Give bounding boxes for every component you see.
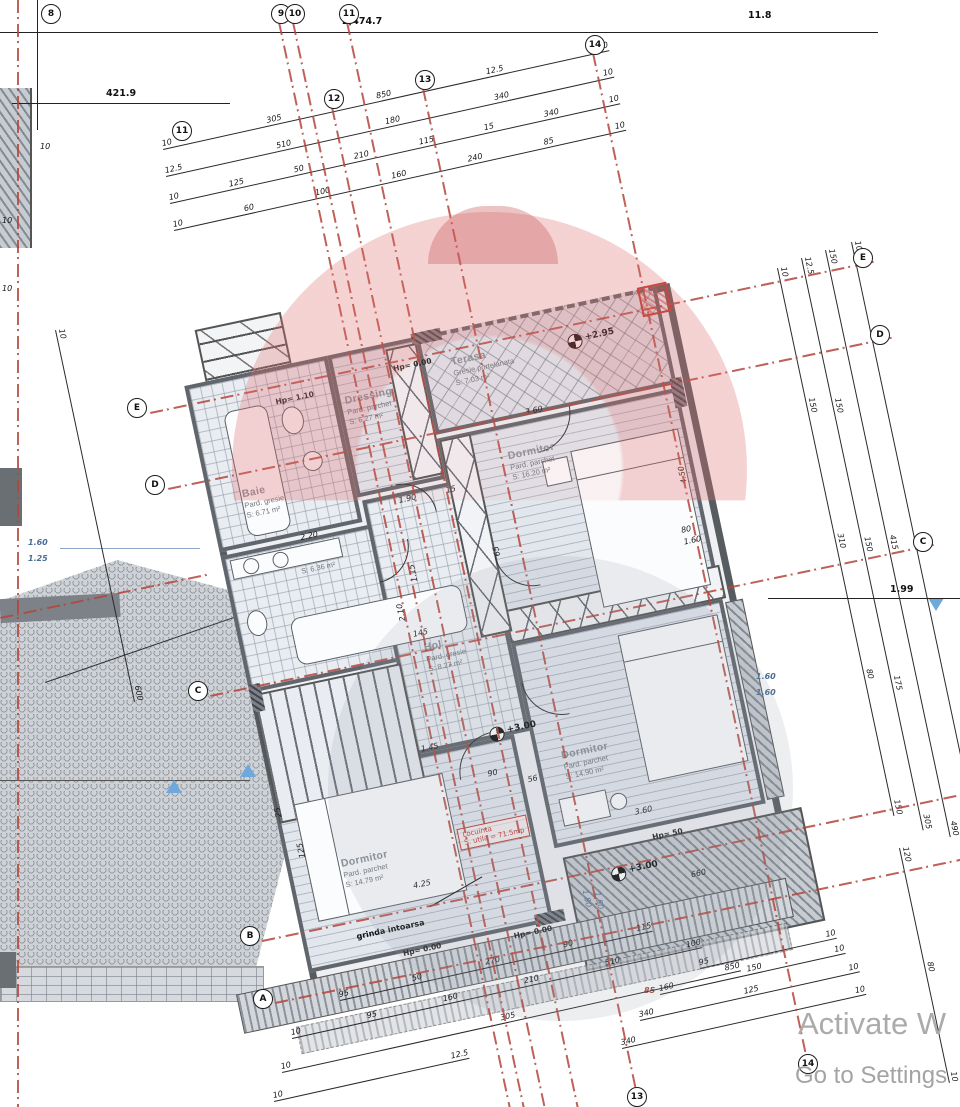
- dim-value: 510: [275, 138, 290, 141]
- grid-bubble-10: 10: [285, 4, 305, 24]
- dim-value: 10: [602, 67, 612, 69]
- dimension-1-99: 1.99: [890, 584, 913, 595]
- top-boundary-line: [0, 32, 878, 33]
- interior-dim: 25: [273, 806, 284, 818]
- interior-dim: 65: [491, 545, 502, 557]
- dim-value: 10: [788, 266, 790, 276]
- dim-value: 12.5: [164, 162, 181, 166]
- dim-value: 15: [483, 121, 493, 123]
- dim-value: 85: [543, 136, 553, 138]
- dim-value: 10: [958, 1071, 960, 1081]
- edge-tick: 10: [40, 142, 50, 151]
- secondary-dimension-line: [12, 103, 230, 104]
- dim-value: 125: [743, 984, 758, 987]
- dim-value: 10: [614, 120, 624, 122]
- dim-value: 150: [816, 397, 819, 412]
- dimension-11-8: 11.8: [748, 10, 771, 21]
- section-line-A: [768, 598, 960, 599]
- dim-value: 305: [266, 113, 281, 116]
- dim-value: 10: [168, 191, 178, 193]
- grid-bubble-D-left: D: [145, 475, 165, 495]
- windows-activation-text: Activate W: [798, 1006, 946, 1042]
- grid-bubble-11: 11: [339, 4, 359, 24]
- floor-plan-canvas: 2,474.7 11.8 421.9 10 10 10 85 8 9 10 11…: [0, 0, 960, 1107]
- grid-bubble-D-right: D: [870, 325, 890, 345]
- grid-bubble-13: 13: [415, 70, 435, 90]
- dim-value: 240: [467, 152, 482, 155]
- dim-value: 310: [844, 532, 847, 547]
- grid-bubble-E-left: E: [127, 398, 147, 418]
- dim-value: 175: [901, 674, 904, 689]
- axis-line-vertical-left: [17, 0, 19, 1107]
- dim-value: 340: [493, 90, 508, 93]
- grid-bubble-11b: 11: [172, 121, 192, 141]
- dim-value: 125: [228, 177, 243, 180]
- dim-value: 12.5: [812, 256, 816, 273]
- edge-tick: 10: [2, 216, 12, 225]
- grid-bubble-12: 12: [324, 89, 344, 109]
- dim-value: 415: [897, 534, 900, 549]
- dim-value: 80: [934, 961, 936, 971]
- dimension-chain-right-5: 1208010: [899, 848, 950, 1083]
- dim-value: 10: [161, 137, 171, 139]
- dim-value: 115: [418, 134, 433, 137]
- left-edge-line: [37, 0, 38, 130]
- roof-edge-strip: [0, 966, 264, 1002]
- dim-value: 80: [873, 668, 875, 678]
- grid-bubble-C-right: C: [913, 532, 933, 552]
- dim-value: 340: [638, 1007, 653, 1010]
- dim-value: 10: [608, 93, 618, 95]
- dimension-421-9: 421.9: [106, 88, 136, 99]
- dim-value: 10: [854, 984, 864, 986]
- grid-bubble-A-left: A: [253, 989, 273, 1009]
- roof-slope-arrow-1: [166, 780, 182, 793]
- dim-value: 12.5: [485, 64, 502, 68]
- right-pair-dim-2: 1.60: [756, 688, 776, 697]
- grid-bubble-14: 14: [585, 35, 605, 55]
- dim-value: 150: [836, 248, 839, 263]
- dim-value: 10: [66, 328, 68, 338]
- dimension-chain-top-1: 1030585012.510: [163, 50, 609, 150]
- windows-activation-settings-text: Go to Settings: [795, 1062, 947, 1090]
- grid-bubble-E-right: E: [853, 248, 873, 268]
- dim-value: 340: [543, 107, 558, 110]
- section-marker-triangle: [928, 598, 944, 611]
- grid-bubble-13-bottom: 13: [627, 1087, 647, 1107]
- dim-value: 340: [620, 1035, 635, 1038]
- dim-value: 180: [384, 114, 399, 117]
- dim-value: 10: [172, 218, 182, 220]
- dim-value: 10: [272, 1089, 282, 1091]
- dim-value: 10: [848, 962, 858, 964]
- dim-value: 12.5: [450, 1048, 467, 1052]
- dim-value: 210: [353, 149, 368, 152]
- grid-bubble-B-left: B: [240, 926, 260, 946]
- grid-bubble-8: 8: [41, 4, 61, 24]
- dim-value: 850: [375, 88, 390, 91]
- dim-value: 160: [390, 168, 405, 171]
- right-pair-dim-1: 1.60: [756, 672, 776, 681]
- dim-value: 150: [871, 536, 874, 551]
- left-pair-dim-2: 1.25: [28, 554, 48, 563]
- dim-value: 60: [243, 202, 253, 204]
- grid-bubble-C-left: C: [188, 681, 208, 701]
- dim-value: 120: [910, 846, 913, 861]
- left-edge-block-2: [0, 952, 16, 988]
- dim-value: 150: [842, 397, 845, 412]
- dim-value: 50: [293, 163, 303, 165]
- edge-tick: 10: [2, 284, 12, 293]
- left-pair-dim-1: 1.60: [28, 538, 48, 547]
- dim-value: 305: [930, 813, 933, 828]
